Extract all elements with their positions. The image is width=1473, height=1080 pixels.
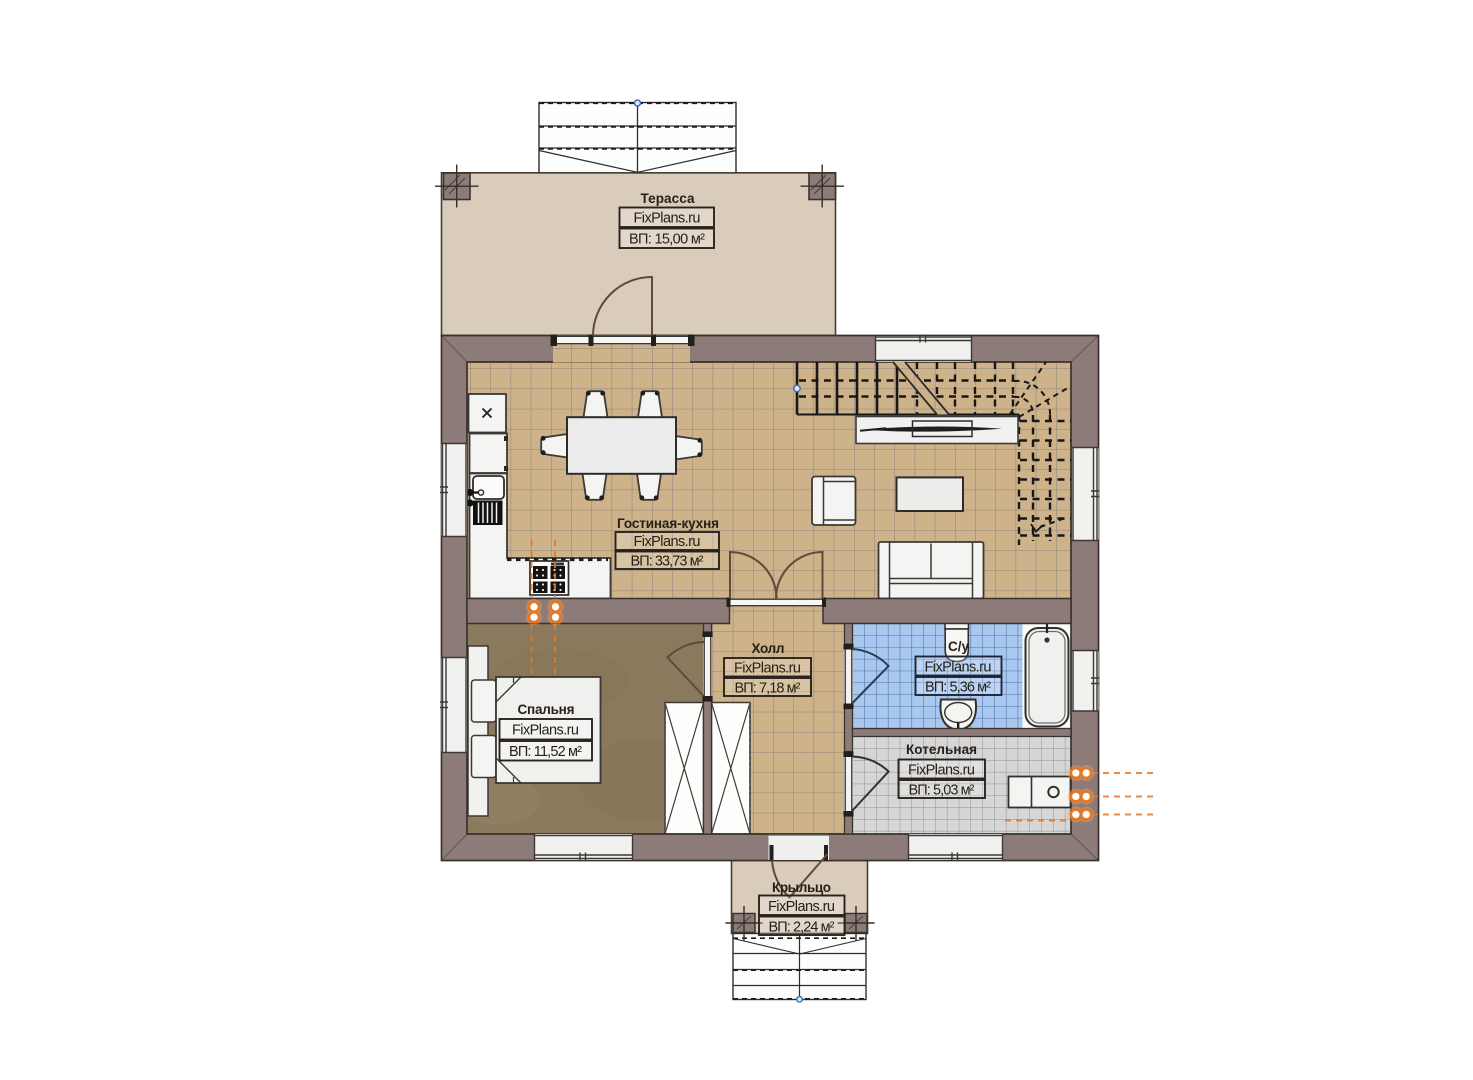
svg-text:FixPlans.ru: FixPlans.ru: [925, 660, 992, 676]
svg-text:ВП: 2,24 м²: ВП: 2,24 м²: [769, 920, 835, 936]
svg-text:Холл: Холл: [752, 641, 785, 656]
svg-text:ВП: 5,03 м²: ВП: 5,03 м²: [909, 783, 975, 799]
svg-text:ВП: 15,00 м²: ВП: 15,00 м²: [629, 232, 705, 248]
svg-text:С/у: С/у: [948, 639, 969, 654]
svg-text:ВП: 5,36 м²: ВП: 5,36 м²: [925, 680, 991, 696]
svg-text:FixPlans.ru: FixPlans.ru: [512, 723, 579, 739]
svg-text:ВП: 11,52 м²: ВП: 11,52 м²: [509, 744, 582, 760]
svg-text:FixPlans.ru: FixPlans.ru: [908, 763, 975, 779]
svg-text:ВП: 33,73 м²: ВП: 33,73 м²: [631, 554, 704, 570]
svg-text:FixPlans.ru: FixPlans.ru: [768, 899, 835, 915]
svg-text:FixPlans.ru: FixPlans.ru: [634, 534, 701, 550]
svg-text:Спальня: Спальня: [518, 702, 575, 717]
svg-text:ВП: 7,18 м²: ВП: 7,18 м²: [735, 681, 801, 697]
svg-text:Крыльцо: Крыльцо: [772, 880, 831, 895]
svg-text:Терасса: Терасса: [641, 191, 695, 206]
svg-text:Гостиная-кухня: Гостиная-кухня: [617, 516, 719, 531]
svg-text:Котельная: Котельная: [906, 742, 977, 757]
svg-text:FixPlans.ru: FixPlans.ru: [734, 661, 801, 677]
svg-text:FixPlans.ru: FixPlans.ru: [634, 211, 701, 227]
